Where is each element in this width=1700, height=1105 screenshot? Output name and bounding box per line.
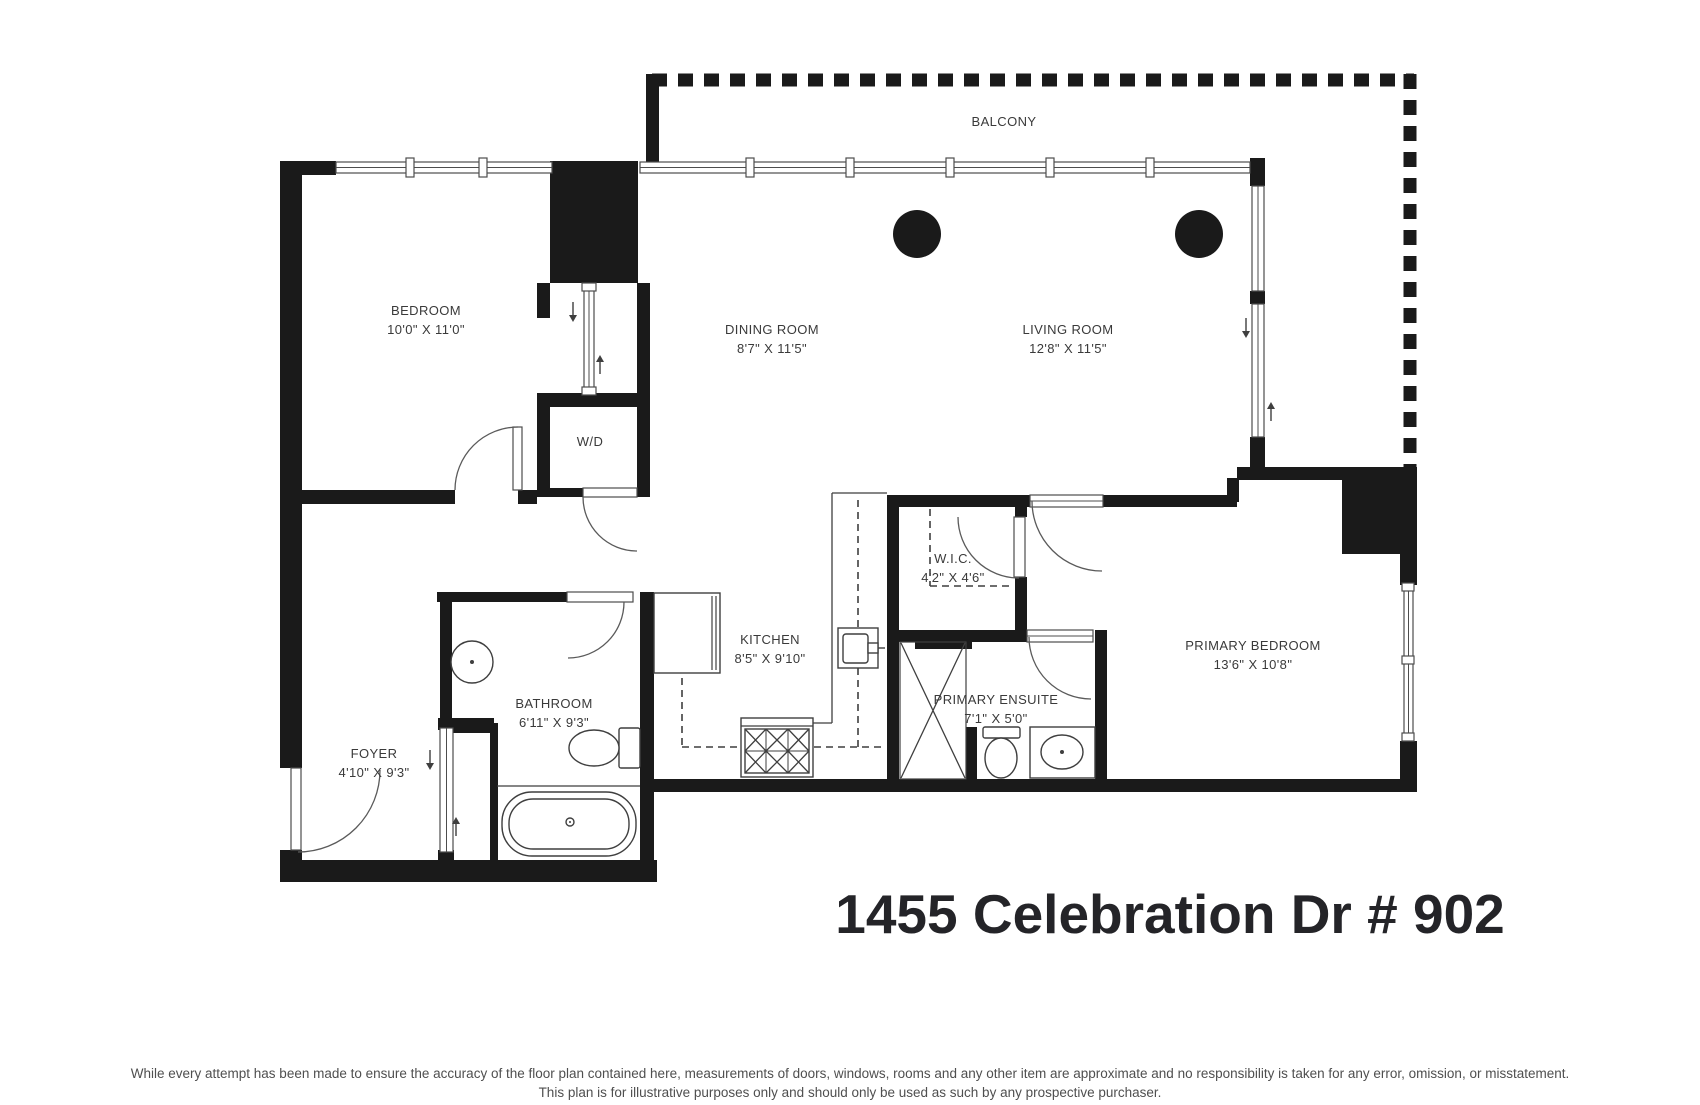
ensuite-toilet-fixture [983,727,1020,778]
counter-lines [813,493,887,723]
column-circle [893,210,941,258]
slide-arrows [426,302,1275,836]
floor-plan-canvas: BALCONY BEDROOM 10'0" X 11'0" DINING ROO… [0,0,1700,1100]
disclaimer: While every attempt has been made to ens… [0,1064,1700,1102]
bathroom-sink-fixture [451,641,493,683]
primary-suite-door-arc [1032,501,1102,571]
arrow-down-icon [426,750,434,770]
bedroom-door-leaf [513,427,522,490]
wd-door-arc [583,497,637,551]
arrow-down-icon [1242,318,1250,338]
room-label-foyer: FOYER 4'10" X 9'3" [338,744,409,782]
room-label-living-room: LIVING ROOM 12'8" X 11'5" [1022,320,1113,358]
arrow-up-icon [596,355,604,374]
entry-door-leaf [291,768,301,850]
ensuite-vanity-fixture [1030,727,1095,778]
room-label-primary-ensuite: PRIMARY ENSUITE 7'1" X 5'0" [934,690,1059,728]
columns [893,210,1223,258]
bathroom-fixtures [451,641,640,856]
bathroom-door-arc [568,602,624,658]
entry-door-arc [298,770,380,852]
disclaimer-line-1: While every attempt has been made to ens… [0,1064,1700,1083]
kitchen-sink-fixture [838,628,885,668]
fridge-fixture [654,593,720,673]
bathroom-door-frame [567,592,633,602]
stove-fixture [741,718,813,777]
plan-title: 1455 Celebration Dr # 902 [835,882,1505,946]
disclaimer-line-2: This plan is for illustrative purposes o… [0,1083,1700,1102]
arrow-down-icon [569,302,577,322]
column-circle [1175,210,1223,258]
bedroom-door-arc [455,427,518,490]
room-label-primary-bedroom: PRIMARY BEDROOM 13'6" X 10'8" [1185,636,1321,674]
room-label-bathroom: BATHROOM 6'11" X 9'3" [515,694,592,732]
bathtub-fixture [502,792,636,856]
room-label-balcony: BALCONY [972,112,1037,131]
room-label-washer-dryer: W/D [577,432,603,451]
room-label-dining-room: DINING ROOM 8'7" X 11'5" [725,320,819,358]
balcony-outline [646,74,1414,467]
room-label-bedroom: BEDROOM 10'0" X 11'0" [387,301,465,339]
arrow-up-icon [1267,402,1275,421]
wd-door-frame [583,488,637,497]
wic-door-leaf [1014,517,1025,577]
room-label-kitchen: KITCHEN 8'5" X 9'10" [734,630,805,668]
bathroom-toilet-fixture [569,728,640,768]
room-label-walk-in-closet: W.I.C. 4'2" X 4'6" [921,549,984,587]
